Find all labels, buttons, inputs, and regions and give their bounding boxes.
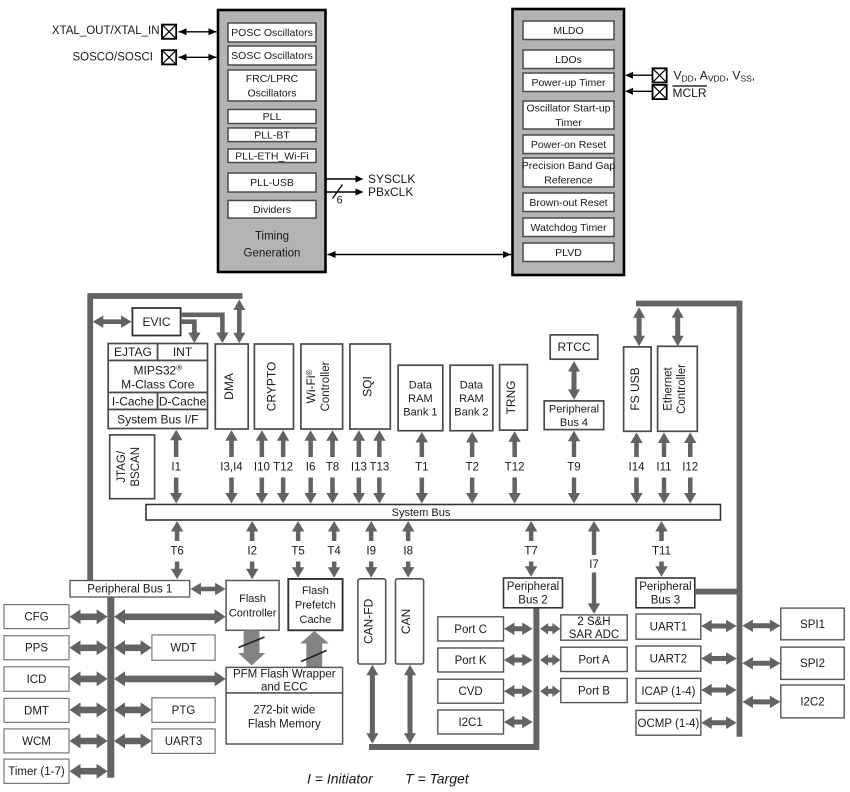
- svg-text:Cache: Cache: [300, 614, 332, 626]
- svg-text:BSCAN: BSCAN: [130, 447, 142, 487]
- svg-text:Controller: Controller: [229, 608, 277, 620]
- svg-text:Peripheral: Peripheral: [639, 581, 691, 593]
- svg-text:MLDO: MLDO: [553, 25, 583, 37]
- svg-text:Bank 2: Bank 2: [454, 406, 488, 418]
- svg-text:T2: T2: [465, 462, 478, 474]
- svg-text:I2C2: I2C2: [800, 697, 824, 709]
- svg-text:T = Target: T = Target: [405, 771, 470, 787]
- svg-text:WDT: WDT: [170, 643, 196, 655]
- svg-text:Timer (1-7): Timer (1-7): [8, 766, 65, 778]
- svg-text:MCLR: MCLR: [673, 86, 707, 100]
- svg-text:VDD, AVDD, VSS,: VDD, AVDD, VSS,: [674, 69, 756, 84]
- svg-text:D-Cache: D-Cache: [159, 395, 207, 409]
- svg-text:INT: INT: [173, 345, 193, 359]
- svg-text:CAN-FD: CAN-FD: [362, 598, 376, 644]
- svg-text:ICAP (1-4): ICAP (1-4): [641, 686, 695, 698]
- svg-text:I10: I10: [254, 462, 270, 474]
- svg-text:SQI: SQI: [361, 376, 375, 397]
- svg-text:Port A: Port A: [578, 654, 610, 666]
- svg-text:PLL: PLL: [263, 111, 282, 123]
- svg-text:I13: I13: [351, 462, 367, 474]
- svg-text:I8: I8: [403, 546, 413, 558]
- svg-text:Bus 2: Bus 2: [518, 595, 547, 607]
- svg-text:Timer: Timer: [555, 117, 582, 129]
- svg-text:SOSCO/SOSCI: SOSCO/SOSCI: [72, 52, 153, 64]
- svg-text:RAM: RAM: [408, 393, 432, 405]
- svg-text:Timing: Timing: [255, 231, 289, 243]
- svg-text:Bus 3: Bus 3: [651, 595, 680, 607]
- svg-text:Flash: Flash: [302, 585, 329, 597]
- svg-text:CRYPTO: CRYPTO: [265, 362, 279, 412]
- svg-text:Flash: Flash: [239, 593, 266, 605]
- svg-text:PBxCLK: PBxCLK: [368, 185, 413, 199]
- svg-text:SPI1: SPI1: [800, 619, 825, 631]
- svg-text:XTAL_OUT/XTAL_IN: XTAL_OUT/XTAL_IN: [52, 25, 160, 37]
- svg-text:Oscillator Start-up: Oscillator Start-up: [526, 102, 610, 114]
- svg-text:FS USB: FS USB: [628, 367, 642, 410]
- svg-text:M-Class Core: M-Class Core: [121, 378, 195, 392]
- svg-text:PPS: PPS: [25, 643, 48, 655]
- svg-text:Port K: Port K: [455, 655, 487, 667]
- svg-text:UART1: UART1: [650, 622, 688, 634]
- svg-text:I = Initiator: I = Initiator: [307, 771, 374, 787]
- svg-text:PFM Flash Wrapper: PFM Flash Wrapper: [233, 669, 336, 681]
- svg-text:and ECC: and ECC: [261, 682, 308, 694]
- svg-text:UART2: UART2: [650, 654, 688, 666]
- svg-text:ICD: ICD: [27, 674, 47, 686]
- svg-text:DMA: DMA: [222, 373, 236, 400]
- svg-text:Oscillators: Oscillators: [247, 87, 296, 99]
- svg-text:SPI2: SPI2: [800, 658, 825, 670]
- svg-text:T9: T9: [567, 462, 580, 474]
- svg-text:FRC/LPRC: FRC/LPRC: [246, 73, 299, 85]
- svg-text:CFG: CFG: [24, 612, 48, 624]
- svg-text:SYSCLK: SYSCLK: [368, 172, 415, 186]
- svg-text:272-bit wide: 272-bit wide: [253, 705, 315, 717]
- svg-text:Power-on Reset: Power-on Reset: [531, 139, 606, 151]
- svg-text:Generation: Generation: [244, 248, 301, 260]
- svg-text:I7: I7: [589, 559, 599, 571]
- svg-text:Bank 1: Bank 1: [403, 406, 437, 418]
- svg-text:WCM: WCM: [22, 736, 51, 748]
- svg-text:T12: T12: [505, 462, 525, 474]
- svg-text:I14: I14: [629, 462, 646, 474]
- svg-text:Reference: Reference: [544, 174, 593, 186]
- svg-text:T7: T7: [524, 546, 537, 558]
- svg-text:I1: I1: [171, 462, 181, 474]
- svg-text:T6: T6: [170, 546, 183, 558]
- svg-text:System Bus I/F: System Bus I/F: [117, 413, 198, 427]
- svg-text:RAM: RAM: [459, 393, 483, 405]
- svg-text:Brown-out Reset: Brown-out Reset: [529, 197, 607, 209]
- svg-text:T8: T8: [326, 462, 339, 474]
- svg-text:I12: I12: [682, 462, 698, 474]
- svg-text:Peripheral Bus 1: Peripheral Bus 1: [87, 584, 172, 596]
- svg-text:Data: Data: [409, 379, 433, 391]
- svg-text:Prefetch: Prefetch: [295, 600, 336, 612]
- svg-text:I2: I2: [247, 546, 257, 558]
- svg-text:2 S&H: 2 S&H: [577, 616, 610, 628]
- svg-text:Data: Data: [460, 379, 484, 391]
- svg-text:Dividers: Dividers: [253, 204, 291, 216]
- svg-text:JTAG/: JTAG/: [116, 450, 128, 483]
- svg-text:Flash Memory: Flash Memory: [248, 719, 321, 731]
- svg-text:Peripheral: Peripheral: [549, 403, 599, 415]
- svg-text:EJTAG: EJTAG: [114, 345, 152, 359]
- svg-text:CAN: CAN: [399, 609, 413, 634]
- svg-text:T5: T5: [291, 546, 304, 558]
- svg-text:T1: T1: [415, 462, 428, 474]
- svg-text:SOSC Oscillators: SOSC Oscillators: [231, 50, 313, 62]
- svg-text:I9: I9: [366, 546, 376, 558]
- svg-text:I3,I4: I3,I4: [220, 462, 243, 474]
- svg-text:I6: I6: [306, 462, 316, 474]
- svg-text:T4: T4: [327, 546, 341, 558]
- svg-text:Port B: Port B: [578, 686, 610, 698]
- svg-text:CVD: CVD: [458, 686, 482, 698]
- svg-text:PLL-USB: PLL-USB: [250, 177, 294, 189]
- svg-text:RTCC: RTCC: [557, 340, 590, 354]
- svg-text:Ethernet: Ethernet: [663, 366, 675, 410]
- svg-text:Port C: Port C: [454, 624, 487, 636]
- svg-text:Peripheral: Peripheral: [507, 581, 559, 593]
- svg-text:I11: I11: [656, 462, 671, 474]
- svg-text:Controller: Controller: [320, 361, 332, 411]
- svg-text:I2C1: I2C1: [458, 717, 482, 729]
- svg-text:Precision Band Gap: Precision Band Gap: [522, 160, 616, 172]
- svg-text:T11: T11: [652, 546, 671, 558]
- svg-text:Bus 4: Bus 4: [560, 417, 588, 429]
- svg-text:T13: T13: [369, 462, 389, 474]
- svg-text:TRNG: TRNG: [504, 380, 518, 414]
- svg-text:System Bus: System Bus: [392, 507, 451, 519]
- svg-text:LDOs: LDOs: [555, 54, 582, 66]
- svg-text:Power-up Timer: Power-up Timer: [531, 77, 606, 89]
- svg-text:EVIC: EVIC: [142, 315, 170, 329]
- svg-text:T12: T12: [273, 462, 293, 474]
- svg-text:UART3: UART3: [165, 736, 203, 748]
- svg-text:6: 6: [336, 195, 342, 207]
- svg-text:PTG: PTG: [172, 705, 196, 717]
- svg-text:POSC Oscillators: POSC Oscillators: [231, 27, 313, 39]
- svg-text:Controller: Controller: [676, 364, 688, 414]
- svg-text:Watchdog Timer: Watchdog Timer: [530, 222, 607, 234]
- svg-text:SAR ADC: SAR ADC: [569, 629, 620, 641]
- svg-text:MIPS32®: MIPS32®: [134, 364, 183, 378]
- svg-text:I-Cache: I-Cache: [112, 395, 154, 409]
- svg-text:PLL-BT: PLL-BT: [254, 130, 290, 142]
- svg-text:PLL-ETH_Wi-Fi: PLL-ETH_Wi-Fi: [235, 150, 309, 162]
- svg-text:OCMP (1-4): OCMP (1-4): [638, 718, 700, 730]
- svg-text:DMT: DMT: [24, 705, 49, 717]
- svg-text:PLVD: PLVD: [555, 247, 582, 259]
